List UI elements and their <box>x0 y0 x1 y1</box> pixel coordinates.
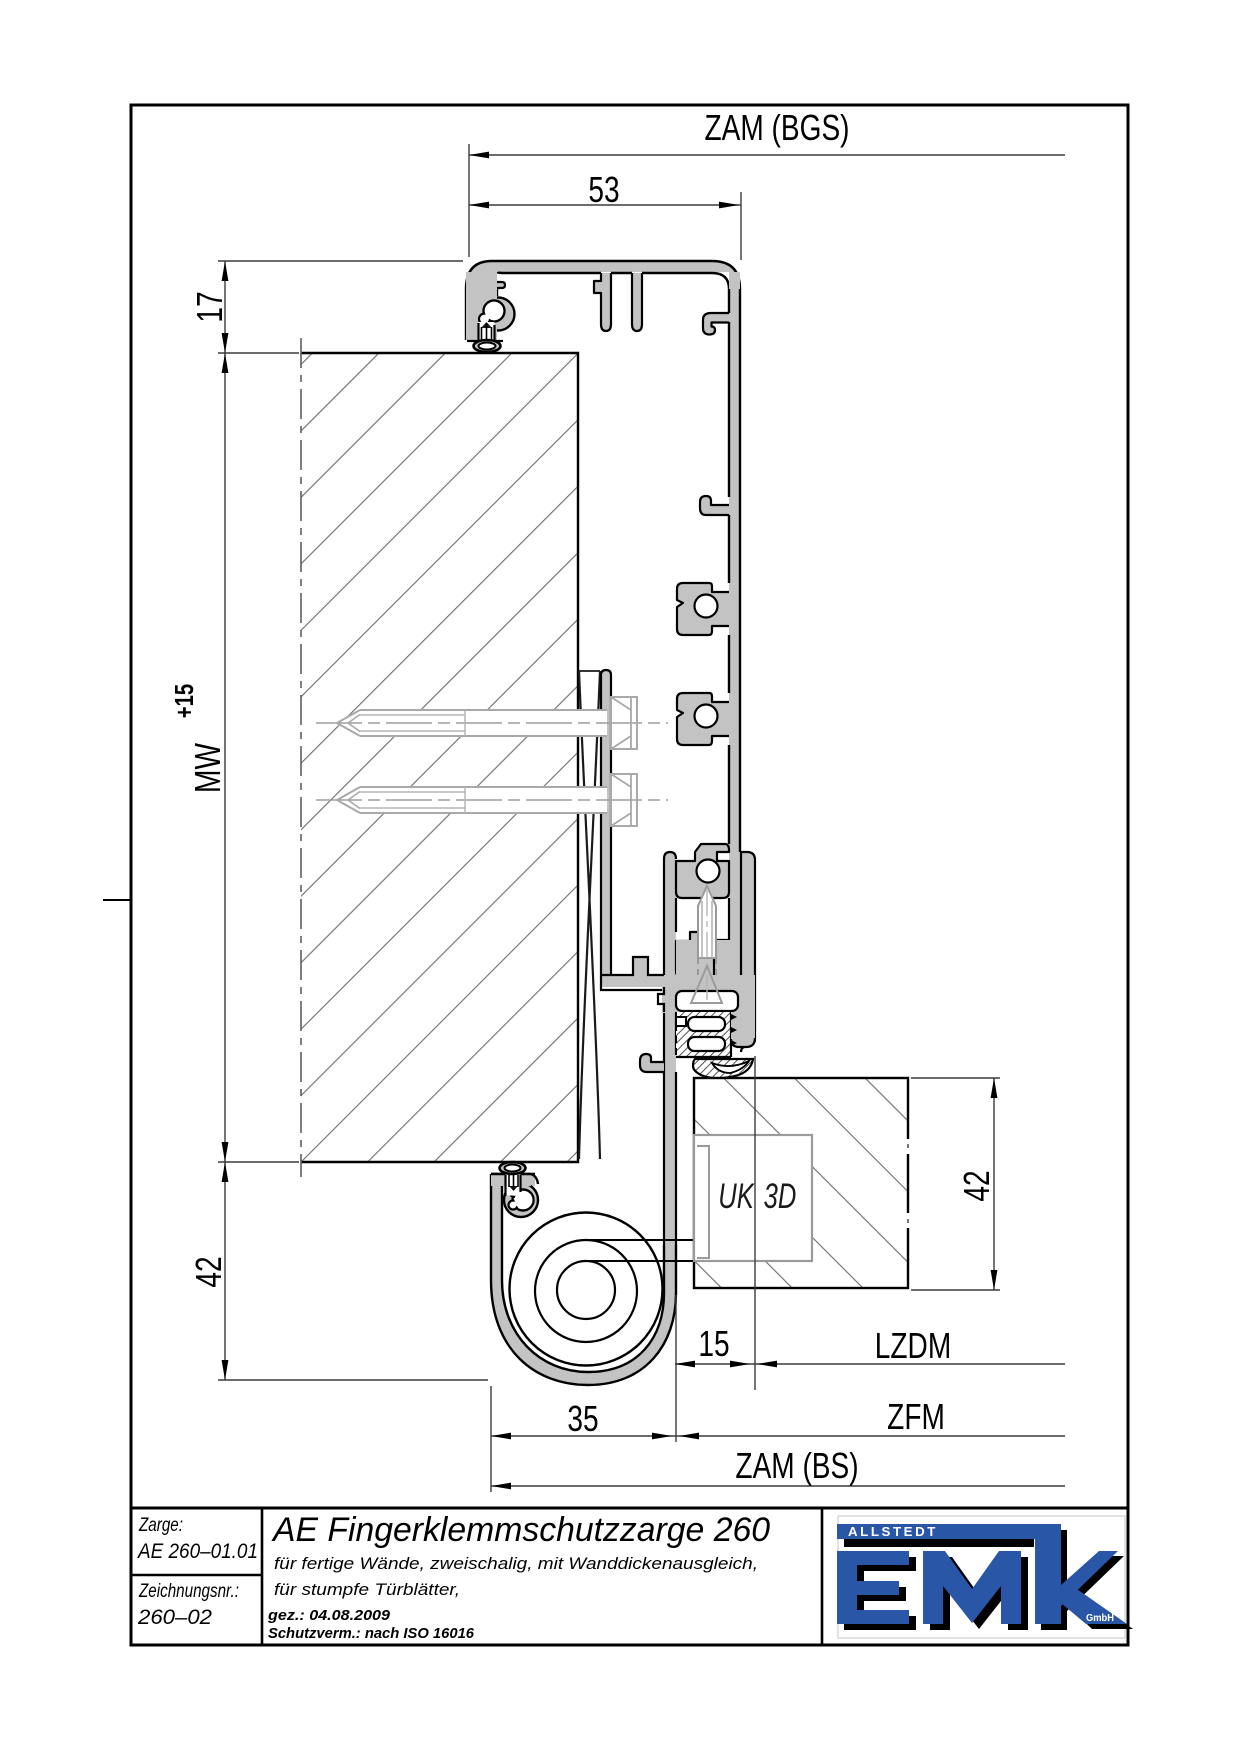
svg-text:Zeichnungsnr.:: Zeichnungsnr.: <box>138 1581 239 1602</box>
svg-text:ZFM: ZFM <box>887 1397 945 1437</box>
svg-text:35: 35 <box>567 1399 598 1439</box>
svg-text:+15: +15 <box>170 684 199 718</box>
svg-text:15: 15 <box>698 1324 729 1364</box>
svg-text:260–02: 260–02 <box>137 1606 212 1629</box>
svg-text:Zarge:: Zarge: <box>138 1515 183 1536</box>
svg-text:ZAM (BGS): ZAM (BGS) <box>705 108 850 148</box>
svg-text:53: 53 <box>588 170 619 210</box>
svg-text:ZAM (BS): ZAM (BS) <box>735 1446 858 1486</box>
svg-text:gez.: 04.08.2009: gez.: 04.08.2009 <box>267 1607 391 1624</box>
svg-text:MW: MW <box>188 743 228 793</box>
svg-text:LZDM: LZDM <box>875 1326 951 1366</box>
svg-text:3D: 3D <box>764 1177 797 1216</box>
svg-text:AE 260–01.01: AE 260–01.01 <box>136 1540 258 1563</box>
svg-text:UK: UK <box>718 1177 755 1216</box>
svg-text:17: 17 <box>190 291 230 322</box>
svg-text:für fertige Wände, zweischalig: für fertige Wände, zweischalig, mit Wand… <box>274 1554 758 1573</box>
svg-text:42: 42 <box>957 1170 997 1201</box>
svg-text:ALLSTEDT: ALLSTEDT <box>848 1524 938 1539</box>
svg-text:Schutzverm.: nach ISO 16016: Schutzverm.: nach ISO 16016 <box>268 1625 475 1642</box>
svg-text:für stumpfe Türblätter,: für stumpfe Türblätter, <box>274 1580 460 1599</box>
svg-text:42: 42 <box>189 1256 229 1287</box>
svg-text:AE Fingerklemmschutzzarge 260: AE Fingerklemmschutzzarge 260 <box>271 1511 770 1549</box>
svg-text:GmbH: GmbH <box>1086 1612 1114 1624</box>
